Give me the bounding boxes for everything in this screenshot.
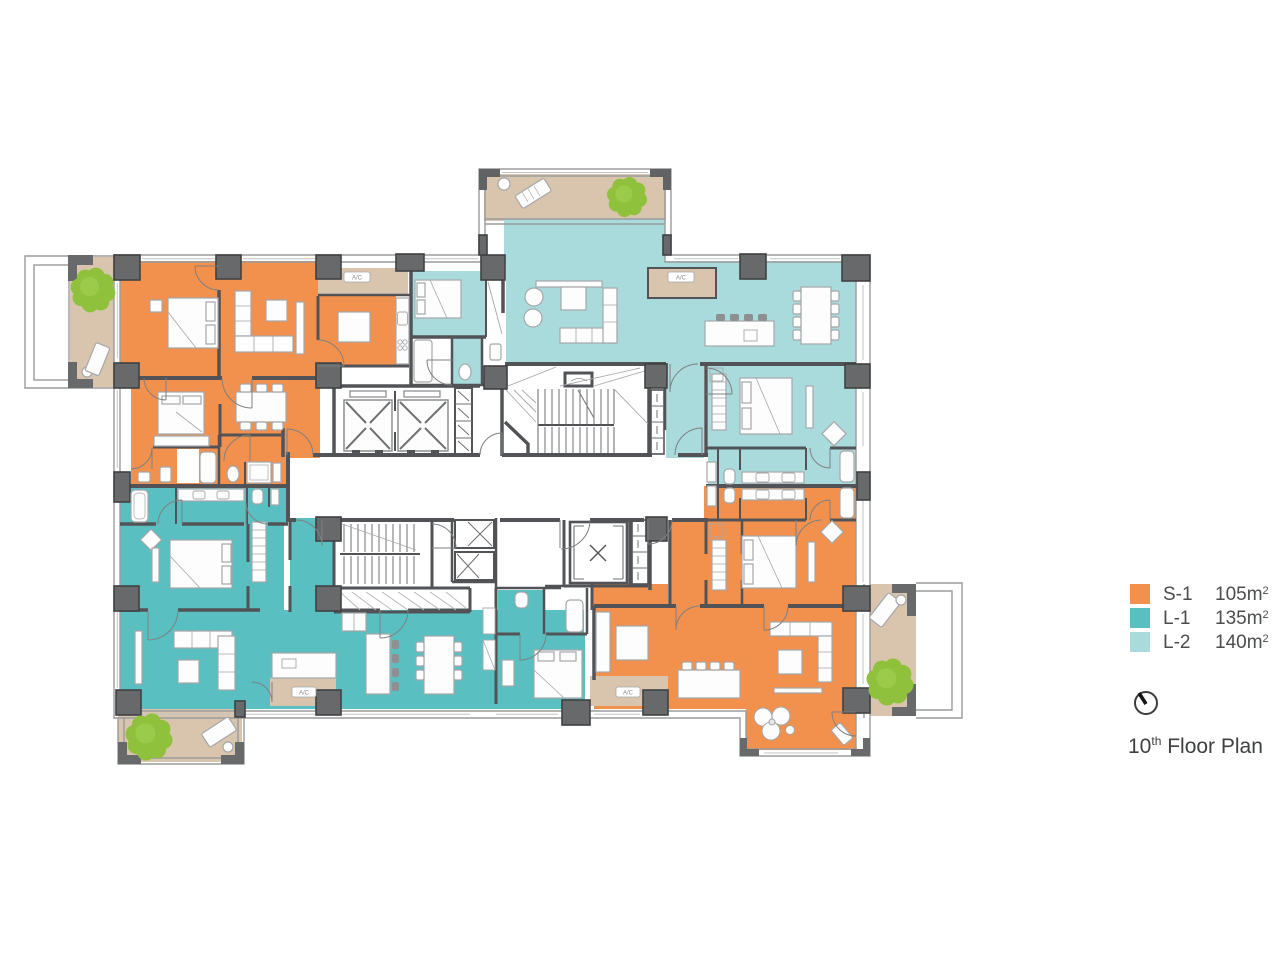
svg-text:140m2: 140m2	[1215, 632, 1269, 653]
svg-text:10th Floor Plan: 10th Floor Plan	[1128, 734, 1263, 758]
svg-text:A/C: A/C	[299, 691, 310, 697]
svg-text:A/C: A/C	[623, 691, 634, 697]
svg-text:A/C: A/C	[676, 276, 687, 282]
svg-text:S-1: S-1	[1163, 584, 1193, 605]
svg-text:L-1: L-1	[1163, 608, 1190, 629]
svg-text:135m2: 135m2	[1215, 608, 1269, 629]
svg-text:A/C: A/C	[352, 276, 363, 282]
svg-text:L-2: L-2	[1163, 632, 1190, 653]
svg-text:105m2: 105m2	[1215, 584, 1269, 605]
